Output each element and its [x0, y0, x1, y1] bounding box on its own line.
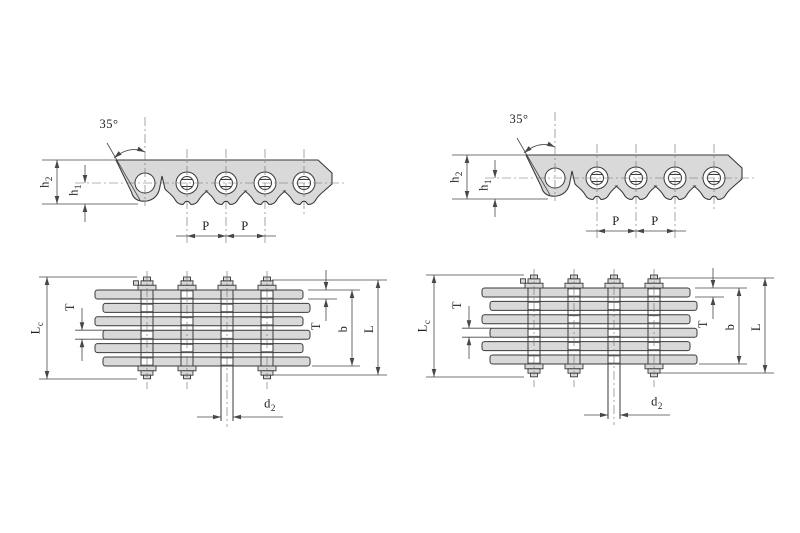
h2-dimension-label: h2	[38, 176, 54, 188]
leaf-chain-drawing-sheet: 35° h2 h1 P P 35° h2 h1 P P Lc T T b L d…	[0, 0, 800, 533]
plan-view-geometry	[412, 253, 782, 433]
plate-thickness-label: T	[697, 320, 710, 328]
h2-dimension-label: h2	[448, 171, 464, 183]
pitch-dimension-label: P	[651, 215, 658, 228]
side-view-geometry	[30, 105, 360, 255]
plate-thickness-label: T	[64, 303, 77, 311]
pin-length-label: L	[363, 325, 376, 333]
angle-dimension-label: 35°	[100, 118, 119, 131]
pin-length-label: L	[750, 323, 763, 331]
h1-dimension-label: h1	[477, 179, 493, 191]
h1-dimension-label: h1	[67, 184, 83, 196]
side-view-right: 35° h2 h1 P P	[440, 100, 770, 250]
pitch-dimension-label: P	[241, 220, 248, 233]
angle-dimension-label: 35°	[510, 113, 529, 126]
lc-dimension-label: Lc	[29, 322, 45, 335]
plate-width-label: b	[337, 326, 350, 333]
pitch-dimension-label: P	[612, 215, 619, 228]
pitch-dimension-label: P	[202, 220, 209, 233]
side-view-left: 35° h2 h1 P P	[30, 105, 360, 255]
plan-view-geometry	[25, 255, 395, 435]
pin-diameter-label: d2	[651, 395, 663, 411]
side-view-geometry	[440, 100, 770, 250]
plate-thickness-label: T	[451, 301, 464, 309]
plate-thickness-label: T	[310, 322, 323, 330]
pin-diameter-label: d2	[264, 397, 276, 413]
plate-width-label: b	[724, 324, 737, 331]
lc-dimension-label: Lc	[416, 320, 432, 333]
plan-view-left: Lc T T b L d2	[25, 255, 395, 435]
plan-view-right: Lc T T b L d2	[412, 253, 782, 433]
